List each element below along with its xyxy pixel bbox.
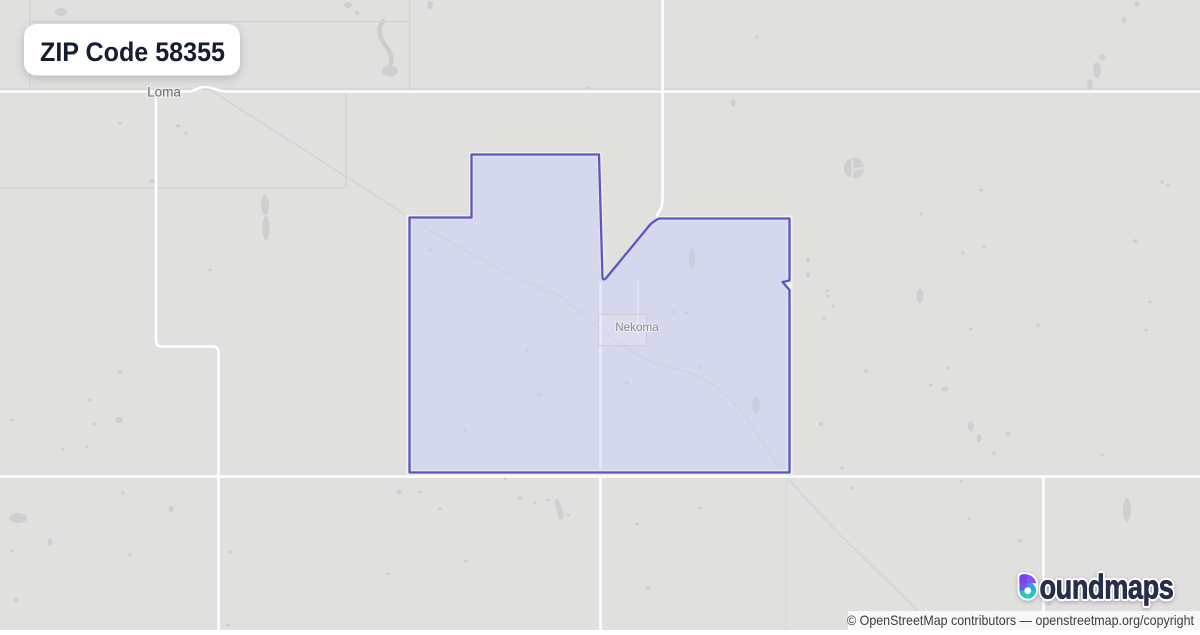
svg-text:oundmaps: oundmaps	[1040, 569, 1174, 607]
svg-text:Nekoma: Nekoma	[615, 320, 659, 334]
svg-text:© OpenStreetMap contributors —: © OpenStreetMap contributors — openstree…	[847, 613, 1194, 628]
svg-text:ZIP Code 58355: ZIP Code 58355	[40, 37, 225, 67]
svg-text:Loma: Loma	[147, 85, 181, 100]
